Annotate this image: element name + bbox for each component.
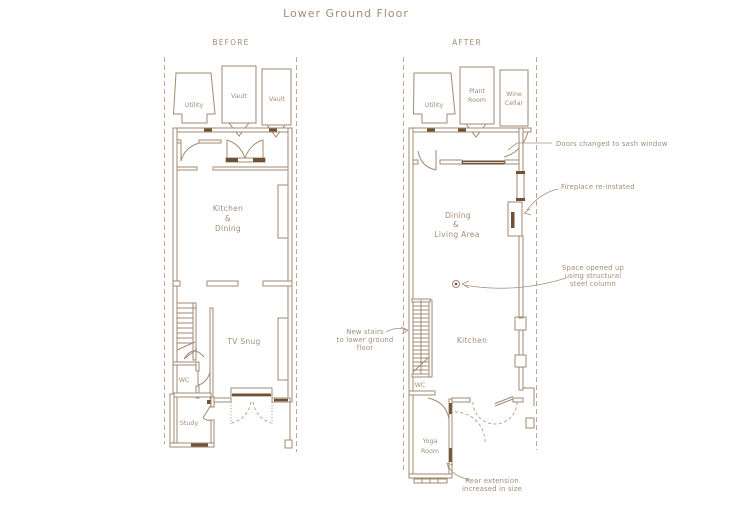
after-entrance-door xyxy=(418,150,436,170)
room-label-study: Study xyxy=(180,420,198,427)
room-label-kitchen-dining-line-2: & xyxy=(225,214,231,223)
room-label-dining-living-line-1: Dining xyxy=(445,211,471,220)
floor-plan-page: Lower Ground Floor BEFORE AFTER xyxy=(0,0,733,506)
after-utility-room xyxy=(414,73,456,123)
room-label-kitchen-dining-line-3: Dining xyxy=(215,224,241,233)
room-label-wine-cellar-line-2: Cellar xyxy=(505,100,524,107)
before-window-piers xyxy=(173,281,292,286)
room-label-plant-room-line-2: Room xyxy=(468,97,486,104)
annotation-sash-window-text: Doors changed to sash window xyxy=(556,140,668,148)
annotation-steel-column: Space opened up using structural steel c… xyxy=(462,264,624,288)
room-label-tv-snug: TV Snug xyxy=(226,337,260,346)
before-tv-snug-wall xyxy=(207,308,214,404)
annotation-steel-column-line-3: steel column xyxy=(570,280,616,288)
before-vault-1 xyxy=(222,66,256,136)
after-staircase xyxy=(412,299,432,377)
after-sash-window xyxy=(413,160,523,165)
annotation-fireplace-text: Fireplace re-instated xyxy=(561,183,635,191)
room-label-kitchen: Kitchen xyxy=(457,336,487,345)
before-front-wall xyxy=(173,128,292,132)
floor-plan-drawing: Lower Ground Floor BEFORE AFTER xyxy=(0,0,733,506)
before-garden-wall xyxy=(285,402,292,448)
annotation-new-stairs: New stairs to lower ground floor xyxy=(337,327,408,352)
after-heading: AFTER xyxy=(452,38,482,47)
room-label-utility-after: Utility xyxy=(425,102,444,109)
before-hall-partition xyxy=(177,167,289,170)
before-vestibule xyxy=(173,140,221,161)
annotation-rear-extension-line-2: increased in size xyxy=(462,485,522,493)
annotation-rear-extension: Rear extension increased in size xyxy=(447,463,522,493)
before-utility-room xyxy=(174,73,216,123)
room-label-yoga-room-line-1: Yoga xyxy=(422,438,438,445)
after-plan: Utility Plant Room Wine Cellar Dining & … xyxy=(337,57,668,493)
before-heading: BEFORE xyxy=(212,38,249,47)
room-label-vault-2: Vault xyxy=(269,96,285,103)
annotation-rear-extension-line-1: Rear extension xyxy=(465,477,519,485)
before-vault-2 xyxy=(262,69,291,137)
annotation-fireplace: Fireplace re-instated xyxy=(524,183,635,215)
after-wine-cellar xyxy=(500,70,528,157)
room-label-wc-after: WC xyxy=(415,382,426,389)
after-fireplace xyxy=(508,202,522,236)
room-label-vault-1: Vault xyxy=(231,93,247,100)
before-staircase xyxy=(177,303,204,360)
after-bay-window xyxy=(516,171,525,201)
page-title: Lower Ground Floor xyxy=(283,7,409,20)
after-steel-column xyxy=(453,281,460,288)
annotation-steel-column-line-2: using structural xyxy=(565,272,622,280)
room-label-dining-living-line-3: Living Area xyxy=(434,230,479,239)
before-french-doors xyxy=(226,140,265,162)
room-label-wine-cellar-line-1: Wine xyxy=(506,91,522,98)
room-label-dining-living-line-2: & xyxy=(453,220,459,229)
annotation-new-stairs-line-3: floor xyxy=(357,344,373,352)
room-label-utility-before: Utility xyxy=(185,102,204,109)
after-front-wall xyxy=(413,128,531,132)
room-label-yoga-room-line-2: Room xyxy=(421,448,439,455)
room-label-kitchen-dining-line-1: Kitchen xyxy=(213,204,243,213)
room-label-wc-before: WC xyxy=(179,377,190,384)
before-plan: Utility Vault Vault Kitchen & Dining TV … xyxy=(165,57,297,452)
after-outer-walls xyxy=(409,128,523,478)
room-label-plant-room-line-1: Plant xyxy=(469,88,485,95)
annotation-sash-window: Doors changed to sash window xyxy=(508,140,668,150)
annotation-new-stairs-line-1: New stairs xyxy=(346,328,384,336)
after-garden-wall xyxy=(523,388,534,428)
annotation-steel-column-line-1: Space opened up xyxy=(562,264,624,272)
after-rear-doors xyxy=(428,397,523,443)
before-rear-doors xyxy=(214,388,290,424)
annotation-new-stairs-line-2: to lower ground xyxy=(337,336,394,344)
